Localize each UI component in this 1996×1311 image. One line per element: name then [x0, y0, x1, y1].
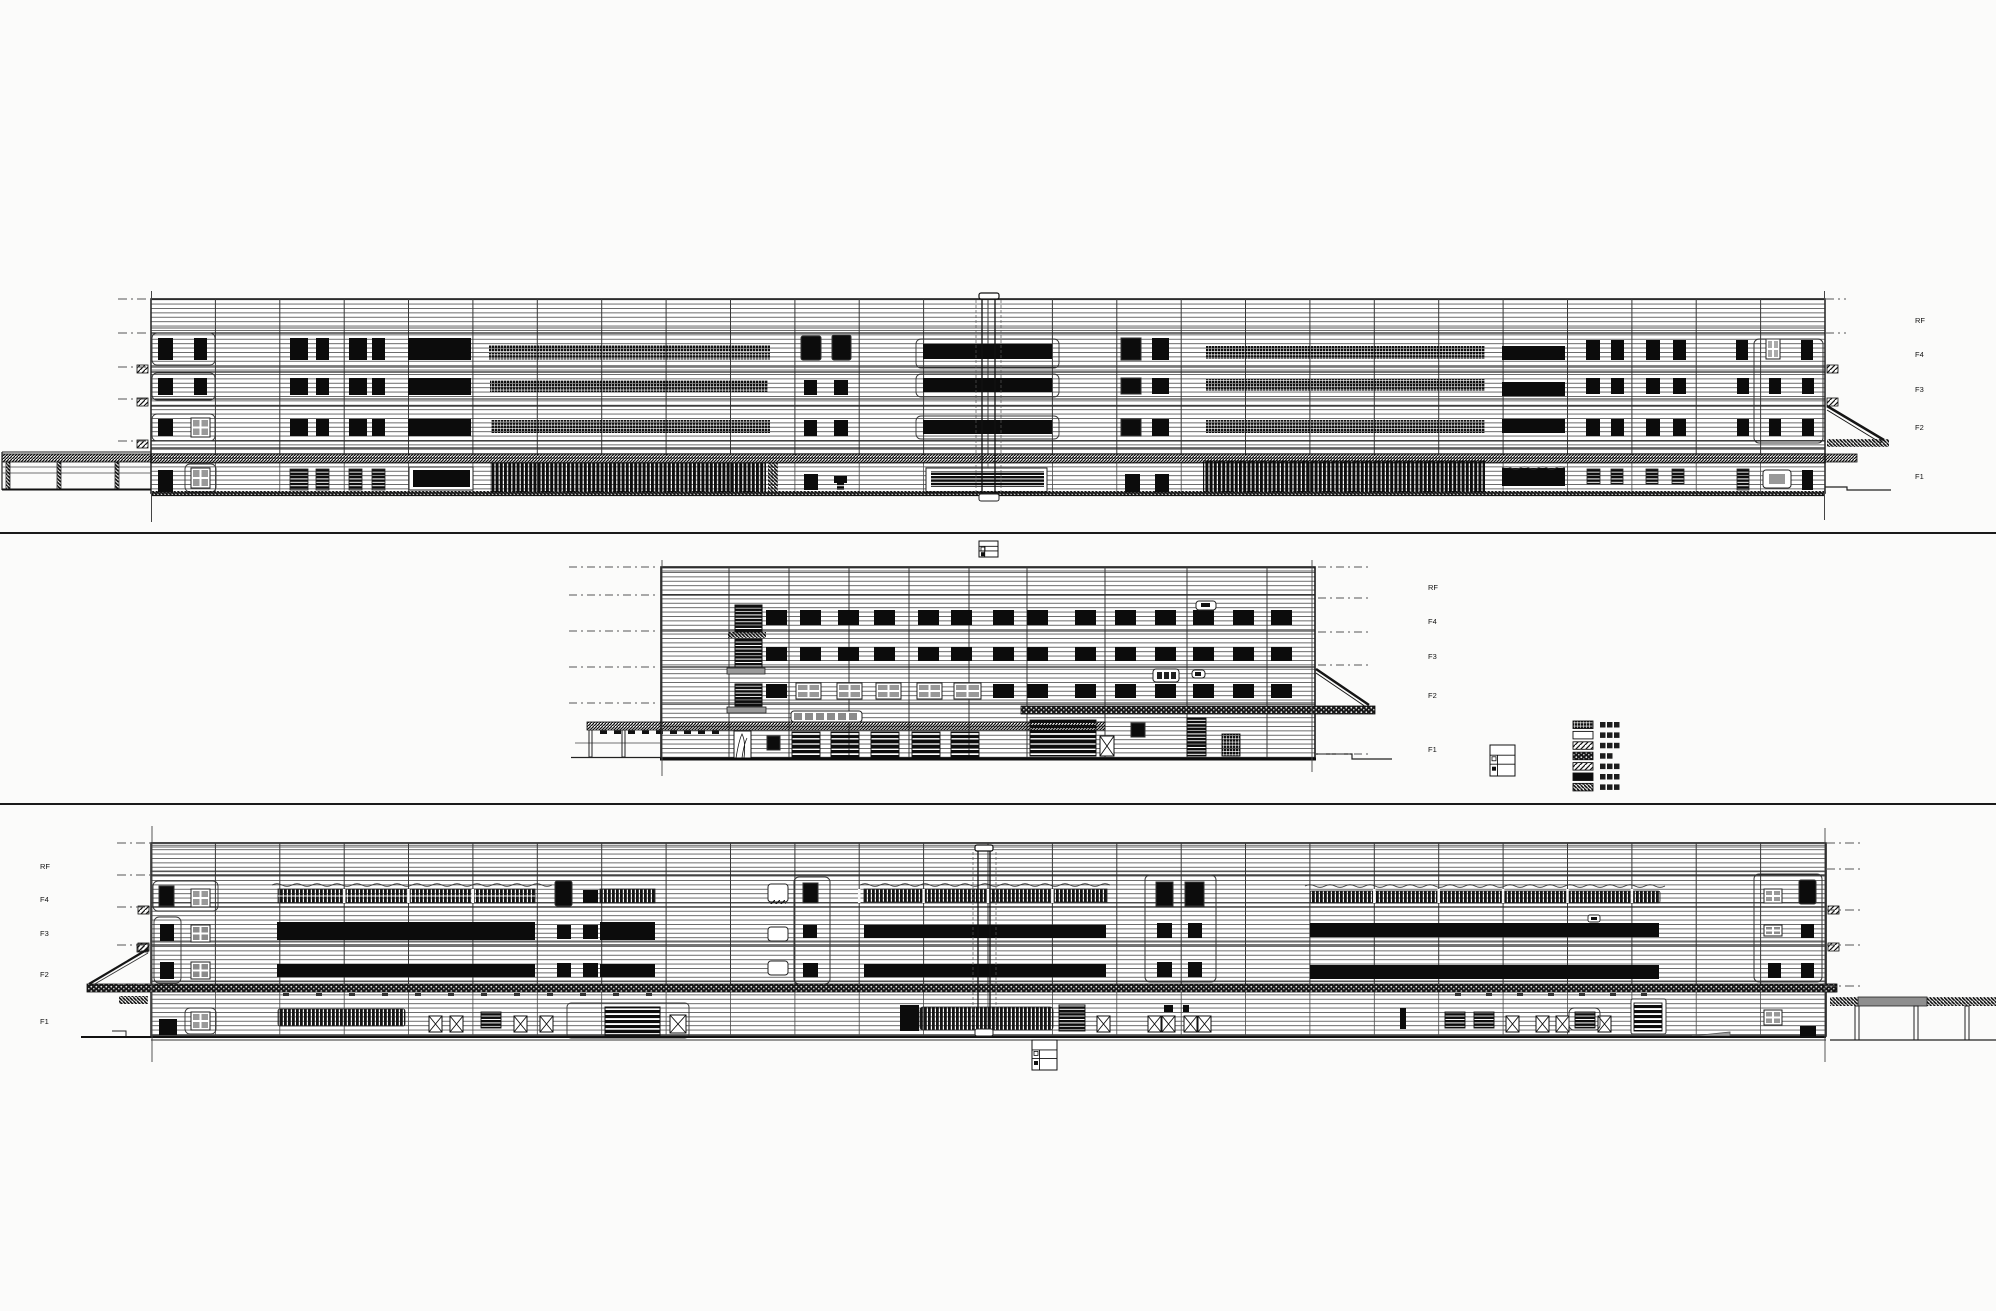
svg-text:F4: F4 — [1915, 350, 1924, 359]
svg-text:RF: RF — [40, 862, 50, 871]
svg-text:F1: F1 — [1915, 472, 1924, 481]
svg-text:F3: F3 — [1915, 385, 1924, 394]
svg-text:F3: F3 — [40, 929, 49, 938]
svg-text:RF: RF — [1428, 583, 1438, 592]
svg-text:F4: F4 — [1428, 617, 1437, 626]
svg-text:F3: F3 — [1428, 652, 1437, 661]
svg-text:F1: F1 — [1428, 745, 1437, 754]
svg-text:RF: RF — [1915, 316, 1925, 325]
svg-text:F1: F1 — [40, 1017, 49, 1026]
svg-text:F2: F2 — [40, 970, 49, 979]
svg-text:F2: F2 — [1428, 691, 1437, 700]
svg-text:F4: F4 — [40, 895, 49, 904]
svg-text:F2: F2 — [1915, 423, 1924, 432]
